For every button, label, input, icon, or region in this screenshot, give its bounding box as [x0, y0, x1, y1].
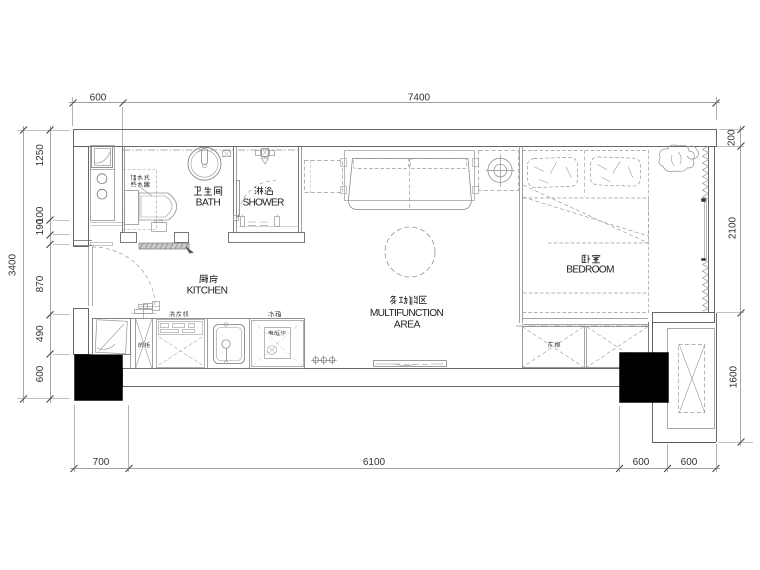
- svg-text:MULTIFUNCTION: MULTIFUNCTION: [370, 308, 444, 319]
- svg-text:600: 600: [633, 457, 650, 468]
- svg-text:200: 200: [727, 129, 738, 146]
- svg-text:3400: 3400: [8, 253, 19, 276]
- svg-text:7400: 7400: [408, 93, 431, 104]
- svg-text:190: 190: [35, 218, 46, 235]
- svg-text:KITCHEN: KITCHEN: [187, 286, 228, 297]
- svg-text:870: 870: [35, 275, 46, 292]
- svg-text:1250: 1250: [35, 144, 46, 167]
- svg-text:490: 490: [35, 325, 46, 342]
- svg-text:SHOWER: SHOWER: [242, 198, 283, 209]
- svg-text:6100: 6100: [363, 457, 386, 468]
- svg-text:AREA: AREA: [394, 320, 421, 331]
- svg-text:BEDROOM: BEDROOM: [566, 265, 614, 276]
- svg-text:700: 700: [93, 457, 110, 468]
- svg-text:600: 600: [90, 93, 107, 104]
- svg-text:BATH: BATH: [196, 198, 221, 209]
- svg-text:600: 600: [35, 365, 46, 382]
- svg-text:1600: 1600: [729, 365, 740, 388]
- svg-text:2100: 2100: [728, 216, 739, 239]
- svg-text:600: 600: [681, 457, 698, 468]
